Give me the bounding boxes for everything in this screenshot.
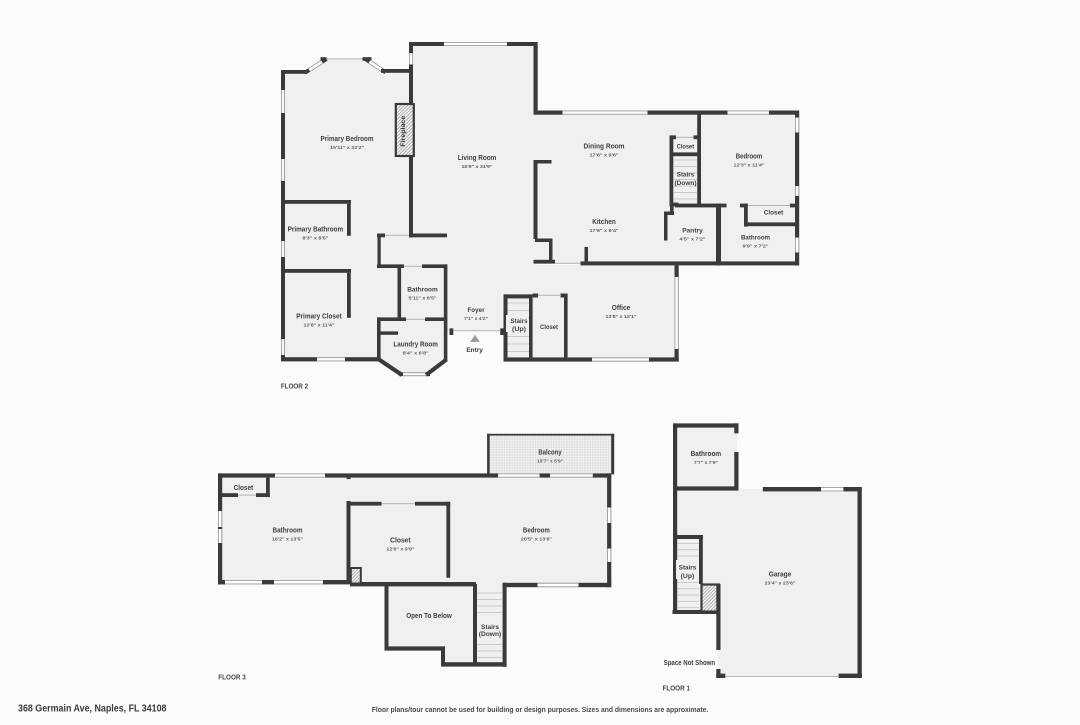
svg-text:(Up): (Up)	[681, 573, 695, 580]
svg-text:9'9" x 7'2": 9'9" x 7'2"	[743, 243, 769, 249]
svg-text:Living Room: Living Room	[458, 153, 497, 162]
svg-text:16'2" x 13'5": 16'2" x 13'5"	[272, 537, 303, 543]
svg-text:Closet: Closet	[540, 324, 559, 331]
svg-text:FLOOR 1: FLOOR 1	[663, 684, 691, 693]
svg-text:8'3" x 8'5": 8'3" x 8'5"	[302, 236, 328, 242]
svg-text:Stairs: Stairs	[679, 565, 697, 572]
svg-text:7'7" x 7'9": 7'7" x 7'9"	[694, 460, 718, 466]
svg-text:5'11" x 6'5": 5'11" x 6'5"	[409, 296, 437, 302]
svg-text:23'4" x 23'6": 23'4" x 23'6"	[765, 581, 796, 587]
svg-text:15'9" x 31'9": 15'9" x 31'9"	[462, 164, 493, 170]
svg-text:Primary Bedroom: Primary Bedroom	[321, 134, 374, 143]
svg-text:Bedroom: Bedroom	[523, 525, 550, 534]
svg-text:Balcony: Balcony	[538, 448, 561, 457]
svg-text:368 Germain Ave, Naples, FL 34: 368 Germain Ave, Naples, FL 34108	[18, 703, 167, 714]
svg-text:Bathroom: Bathroom	[691, 449, 722, 458]
svg-text:8'4" x 6'8": 8'4" x 6'8"	[403, 350, 429, 356]
svg-text:Closet: Closet	[677, 144, 695, 151]
svg-text:Primary Bathroom: Primary Bathroom	[288, 225, 344, 234]
svg-text:Foyer: Foyer	[468, 307, 485, 314]
svg-text:12'8" x 11'4": 12'8" x 11'4"	[304, 323, 335, 329]
svg-text:FLOOR 2: FLOOR 2	[281, 382, 309, 391]
svg-text:Bathroom: Bathroom	[273, 526, 303, 535]
svg-text:Garage: Garage	[769, 570, 792, 579]
svg-text:15'11" x 22'2": 15'11" x 22'2"	[330, 145, 364, 151]
svg-text:Floor plans/tour cannot be use: Floor plans/tour cannot be used for buil…	[372, 707, 709, 714]
svg-text:Closet: Closet	[234, 483, 254, 492]
svg-text:12'3" x 11'4": 12'3" x 11'4"	[734, 163, 765, 169]
svg-text:Laundry Room: Laundry Room	[393, 339, 438, 348]
svg-text:FLOOR 3: FLOOR 3	[218, 673, 246, 682]
svg-text:Bedroom: Bedroom	[736, 152, 763, 161]
svg-text:Stairs: Stairs	[677, 172, 695, 179]
svg-text:(Up): (Up)	[512, 326, 526, 333]
svg-text:Fireplace: Fireplace	[400, 115, 407, 146]
svg-text:Pantry: Pantry	[682, 228, 703, 235]
svg-text:Stairs: Stairs	[481, 624, 499, 631]
svg-text:Kitchen: Kitchen	[592, 217, 616, 226]
svg-text:Open To Below: Open To Below	[406, 611, 452, 620]
svg-text:Primary Closet: Primary Closet	[296, 312, 342, 321]
svg-text:Stairs: Stairs	[511, 318, 528, 325]
svg-text:4'5" x 7'2": 4'5" x 7'2"	[680, 237, 706, 243]
svg-text:Bathroom: Bathroom	[407, 287, 438, 294]
svg-text:20'5" x 13'6": 20'5" x 13'6"	[521, 536, 552, 542]
svg-text:Closet: Closet	[390, 535, 411, 544]
svg-text:(Down): (Down)	[479, 631, 502, 638]
svg-text:Entry: Entry	[466, 347, 483, 354]
svg-text:17'6" x 9'4": 17'6" x 9'4"	[590, 228, 619, 234]
svg-text:12'6" x 9'9": 12'6" x 9'9"	[386, 546, 414, 552]
svg-text:Dining Room: Dining Room	[584, 142, 625, 151]
svg-text:Office: Office	[612, 303, 631, 312]
svg-text:Bathroom: Bathroom	[741, 234, 770, 241]
svg-text:Space Not Shown: Space Not Shown	[664, 658, 716, 667]
svg-text:7'1" x 4'2": 7'1" x 4'2"	[464, 316, 488, 322]
svg-text:17'6" x 9'6": 17'6" x 9'6"	[590, 153, 619, 159]
svg-text:13'8" x 12'1": 13'8" x 12'1"	[606, 314, 637, 320]
svg-text:Closet: Closet	[764, 209, 784, 216]
svg-text:15'7" x 5'9": 15'7" x 5'9"	[537, 459, 563, 465]
svg-text:(Down): (Down)	[675, 180, 697, 187]
